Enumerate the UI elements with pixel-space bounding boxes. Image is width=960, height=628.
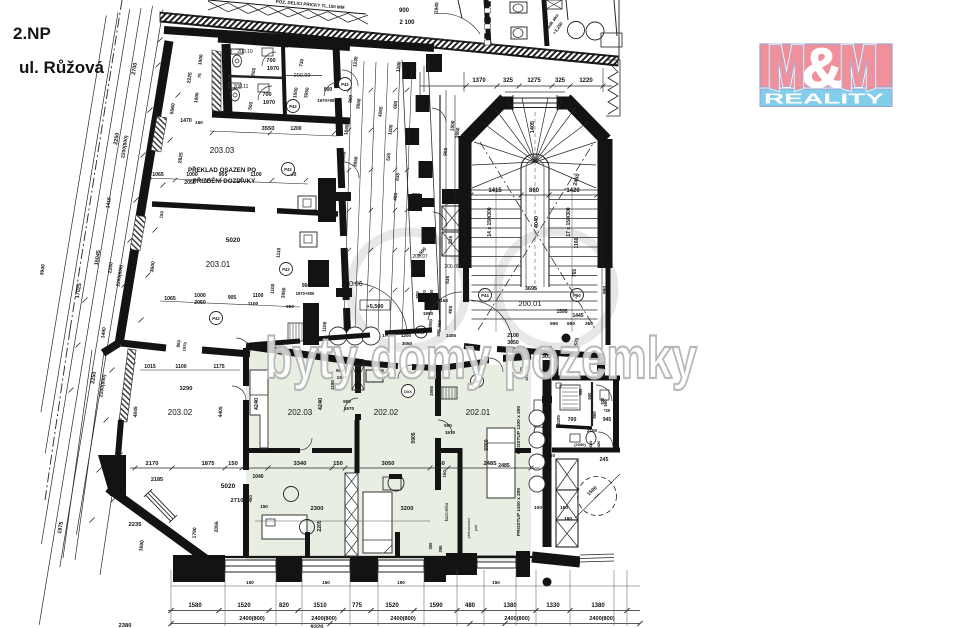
svg-text:150: 150 (228, 461, 238, 467)
svg-text:2.NP: 2.NP (13, 24, 51, 43)
svg-text:1100: 1100 (248, 301, 259, 307)
svg-text:2400(800): 2400(800) (311, 616, 337, 622)
svg-text:150: 150 (397, 580, 405, 585)
svg-text:1015: 1015 (144, 364, 156, 370)
svg-text:150: 150 (560, 505, 568, 511)
svg-text:1510: 1510 (313, 603, 327, 609)
svg-text:1415: 1415 (488, 188, 502, 194)
svg-text:P42: P42 (289, 104, 297, 109)
svg-text:1100: 1100 (175, 364, 186, 370)
svg-text:&: & (802, 36, 842, 99)
svg-text:2300: 2300 (311, 506, 324, 512)
svg-text:1970: 1970 (445, 430, 456, 435)
svg-text:1370: 1370 (472, 78, 486, 84)
svg-text:100: 100 (534, 505, 542, 511)
svg-text:17 x 150/300: 17 x 150/300 (566, 207, 572, 236)
svg-text:2 100: 2 100 (399, 20, 415, 26)
svg-text:1520: 1520 (237, 603, 251, 609)
svg-text:700: 700 (568, 417, 577, 423)
svg-text:203.03: 203.03 (210, 146, 235, 155)
svg-text:1875: 1875 (202, 461, 216, 467)
svg-text:2485: 2485 (484, 461, 498, 467)
svg-text:2170: 2170 (146, 461, 159, 467)
svg-text:1470: 1470 (180, 118, 192, 124)
svg-text:775: 775 (352, 603, 363, 609)
svg-text:4240: 4240 (318, 398, 324, 410)
svg-text:4040: 4040 (534, 216, 540, 228)
svg-text:1110: 1110 (276, 247, 283, 258)
svg-text:P42: P42 (341, 82, 349, 87)
svg-text:945: 945 (603, 417, 612, 423)
svg-text:3050: 3050 (281, 287, 288, 298)
svg-text:1970: 1970 (267, 66, 279, 72)
svg-text:2400(800): 2400(800) (589, 616, 615, 622)
svg-text:+5,500: +5,500 (367, 304, 384, 310)
svg-text:520: 520 (600, 397, 605, 405)
svg-text:2710: 2710 (231, 498, 244, 504)
svg-text:950: 950 (286, 304, 294, 310)
svg-text:PROSTUP 1100 x 200: PROSTUP 1100 x 200 (516, 406, 522, 455)
svg-text:5905: 5905 (411, 432, 417, 443)
svg-text:P42: P42 (284, 167, 292, 172)
svg-text:900: 900 (444, 423, 452, 428)
svg-text:202.03: 202.03 (288, 408, 313, 417)
svg-text:P44: P44 (481, 293, 489, 298)
svg-text:1160: 1160 (574, 237, 580, 248)
svg-text:200.99: 200.99 (294, 73, 311, 79)
svg-text:P42: P42 (282, 267, 290, 272)
svg-text:kartotéka: kartotéka (444, 502, 449, 521)
svg-text:900: 900 (399, 8, 410, 14)
svg-text:525: 525 (448, 235, 455, 244)
svg-text:180: 180 (564, 516, 572, 522)
svg-text:150: 150 (246, 580, 254, 585)
svg-text:3340: 3340 (294, 461, 307, 467)
svg-text:9320: 9320 (311, 625, 324, 628)
svg-text:600: 600 (587, 392, 592, 400)
svg-text:1275: 1275 (527, 78, 541, 84)
svg-text:2235: 2235 (129, 522, 143, 528)
svg-text:přebalovací: přebalovací (466, 517, 471, 539)
svg-text:2055: 2055 (214, 521, 221, 533)
svg-text:1100: 1100 (270, 283, 277, 294)
svg-text:1970: 1970 (263, 100, 275, 106)
svg-text:150: 150 (547, 453, 555, 459)
svg-text:1330: 1330 (546, 603, 560, 609)
svg-text:202.02: 202.02 (374, 408, 399, 417)
svg-text:835: 835 (445, 275, 452, 284)
svg-text:(2050): (2050) (574, 442, 586, 447)
svg-text:200.06: 200.06 (341, 281, 363, 288)
svg-text:2380: 2380 (119, 623, 132, 628)
svg-text:1220: 1220 (579, 78, 593, 84)
svg-text:1445: 1445 (572, 313, 583, 319)
svg-text:325: 325 (555, 78, 566, 84)
svg-text:355: 355 (438, 545, 443, 553)
svg-text:5020: 5020 (226, 237, 241, 244)
svg-text:525: 525 (385, 152, 392, 161)
svg-text:1950: 1950 (423, 311, 434, 316)
svg-text:3290: 3290 (180, 386, 193, 392)
svg-text:4240: 4240 (254, 398, 260, 410)
svg-text:PROSTUP 1150 x 200: PROSTUP 1150 x 200 (516, 488, 522, 537)
svg-text:14 x 150/300: 14 x 150/300 (487, 207, 493, 236)
svg-text:200.07: 200.07 (412, 254, 428, 260)
svg-text:150: 150 (442, 469, 448, 477)
svg-text:1790: 1790 (192, 527, 199, 539)
svg-text:1000: 1000 (186, 172, 198, 178)
svg-text:1160: 1160 (438, 298, 449, 304)
svg-text:450: 450 (596, 440, 601, 447)
svg-text:byty domy pozemky: byty domy pozemky (265, 326, 697, 391)
svg-text:820: 820 (279, 603, 290, 609)
svg-text:200.09: 200.09 (444, 264, 460, 270)
svg-text:202.01: 202.01 (466, 408, 491, 417)
svg-text:4405: 4405 (218, 406, 225, 418)
svg-text:5550: 5550 (484, 439, 490, 450)
svg-text:1590: 1590 (429, 603, 443, 609)
svg-text:150: 150 (435, 461, 445, 467)
svg-text:200.11: 200.11 (234, 84, 249, 90)
svg-text:905: 905 (219, 172, 228, 178)
svg-text:1405: 1405 (530, 121, 536, 133)
svg-text:850: 850 (592, 411, 597, 419)
svg-text:2200: 2200 (556, 415, 561, 425)
svg-text:1580: 1580 (188, 603, 202, 609)
svg-text:325: 325 (503, 78, 514, 84)
svg-text:900: 900 (443, 147, 450, 156)
svg-text:1420: 1420 (566, 188, 580, 194)
svg-text:3695: 3695 (525, 286, 537, 292)
svg-text:1970+900: 1970+900 (296, 291, 315, 296)
svg-text:1100: 1100 (250, 172, 261, 178)
svg-text:3050: 3050 (455, 127, 462, 138)
svg-text:*20: *20 (604, 408, 611, 413)
svg-text:1595: 1595 (556, 309, 567, 315)
svg-text:1520: 1520 (385, 603, 399, 609)
svg-text:1380: 1380 (503, 603, 517, 609)
svg-text:480: 480 (465, 603, 476, 609)
svg-text:P60: P60 (573, 293, 581, 298)
svg-text:765: 765 (572, 269, 578, 278)
svg-text:1100: 1100 (253, 293, 264, 299)
svg-text:P42: P42 (212, 316, 220, 321)
svg-text:860: 860 (529, 188, 540, 194)
svg-text:245: 245 (600, 457, 609, 463)
svg-text:1970+900: 1970+900 (317, 98, 337, 103)
svg-text:203.01: 203.01 (206, 260, 231, 269)
svg-text:3550: 3550 (262, 126, 275, 132)
svg-text:150: 150 (333, 461, 343, 467)
svg-text:1100: 1100 (444, 194, 451, 205)
svg-text:150: 150 (260, 504, 268, 509)
svg-text:400: 400 (392, 192, 399, 201)
svg-text:600: 600 (588, 440, 593, 447)
svg-text:1175: 1175 (213, 364, 224, 370)
svg-text:5020: 5020 (221, 483, 236, 490)
svg-text:2400(800): 2400(800) (504, 616, 530, 622)
svg-text:700: 700 (262, 92, 271, 98)
svg-text:1200: 1200 (290, 126, 301, 132)
svg-text:960: 960 (302, 283, 311, 289)
svg-text:2400(800): 2400(800) (390, 616, 416, 622)
svg-text:700: 700 (266, 58, 275, 64)
svg-text:ul. Růžová: ul. Růžová (19, 58, 105, 77)
svg-text:150: 150 (322, 580, 330, 585)
svg-text:450: 450 (248, 494, 254, 502)
svg-text:4845: 4845 (133, 406, 140, 418)
svg-text:3050: 3050 (382, 461, 395, 467)
svg-text:1000: 1000 (194, 293, 206, 299)
svg-text:203.02: 203.02 (168, 408, 193, 417)
svg-text:300: 300 (428, 542, 433, 550)
svg-text:REALITY: REALITY (764, 92, 885, 108)
svg-text:2050: 2050 (184, 180, 196, 186)
svg-text:2205: 2205 (317, 520, 323, 531)
svg-text:2400(800): 2400(800) (239, 616, 265, 622)
svg-text:3200: 3200 (401, 506, 414, 512)
svg-text:1940: 1940 (434, 2, 441, 14)
svg-text:1380: 1380 (591, 603, 605, 609)
svg-text:2185: 2185 (151, 477, 163, 483)
svg-text:900: 900 (343, 399, 351, 404)
svg-text:200.10: 200.10 (237, 49, 253, 55)
svg-text:400: 400 (448, 305, 455, 314)
svg-text:1040: 1040 (252, 474, 263, 480)
svg-text:1970: 1970 (344, 406, 355, 411)
svg-text:200.01: 200.01 (519, 299, 542, 308)
svg-text:150: 150 (195, 120, 203, 125)
svg-text:905: 905 (228, 295, 237, 301)
svg-text:150: 150 (492, 580, 500, 585)
svg-text:1065: 1065 (152, 172, 164, 178)
svg-text:2150: 2150 (587, 428, 598, 433)
svg-text:990: 990 (602, 286, 608, 294)
svg-text:pult: pult (473, 524, 478, 531)
